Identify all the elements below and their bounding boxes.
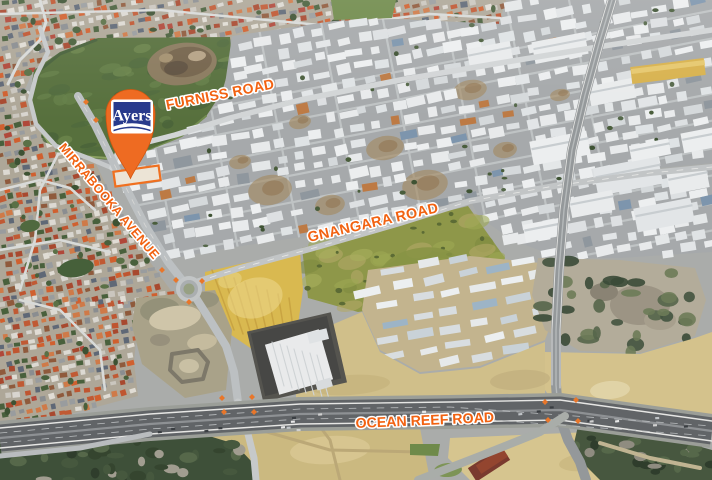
- svg-text:Ayers: Ayers: [112, 107, 151, 125]
